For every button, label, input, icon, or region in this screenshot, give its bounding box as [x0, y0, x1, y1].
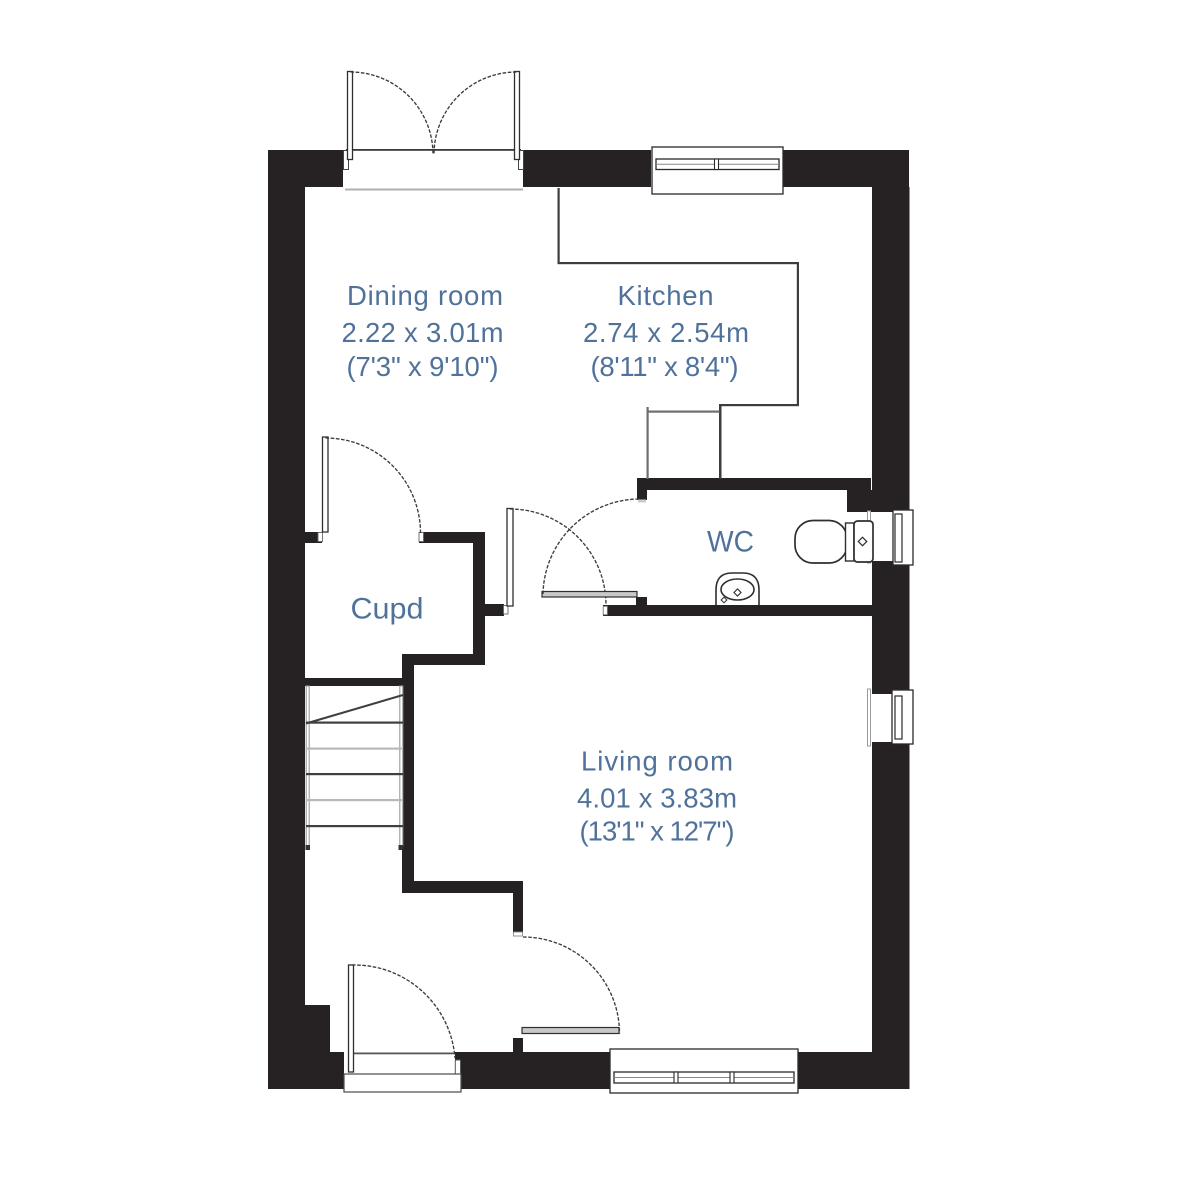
svg-text:(8'11" x 8'4"): (8'11" x 8'4")	[591, 351, 739, 382]
svg-text:2.74 x 2.54m: 2.74 x 2.54m	[583, 317, 749, 348]
svg-text:4.01 x 3.83m: 4.01 x 3.83m	[577, 783, 737, 814]
svg-text:(13'1" x 12'7"): (13'1" x 12'7")	[580, 816, 735, 847]
svg-text:Dining room: Dining room	[347, 280, 503, 311]
svg-text:Living room: Living room	[581, 746, 733, 777]
svg-text:2.22 x 3.01m: 2.22 x 3.01m	[342, 317, 504, 348]
svg-text:Kitchen: Kitchen	[618, 280, 714, 311]
svg-text:Cupd: Cupd	[351, 593, 424, 626]
svg-text:WC: WC	[707, 526, 754, 559]
svg-text:(7'3" x 9'10"): (7'3" x 9'10")	[347, 351, 499, 382]
